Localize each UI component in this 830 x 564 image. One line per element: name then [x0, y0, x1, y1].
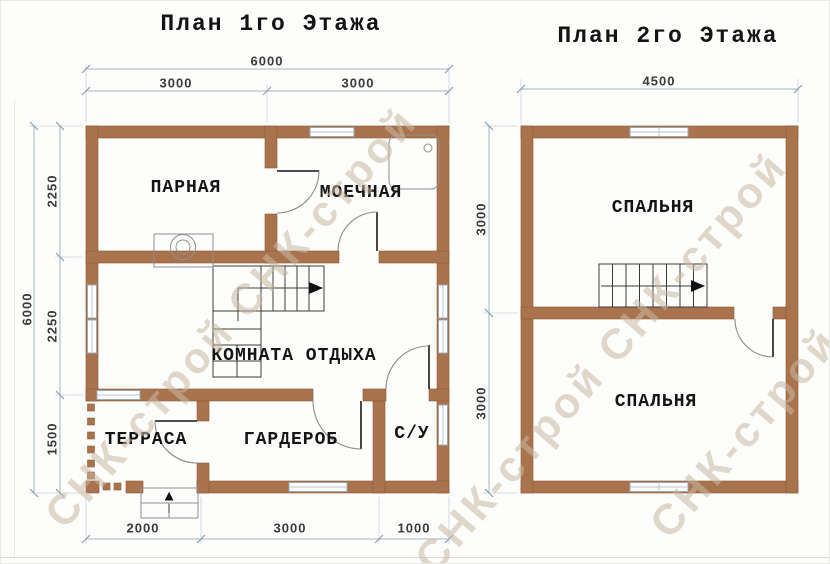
room-label-wash: МОЕЧНАЯ: [320, 183, 403, 203]
floorplan-sheet: План 1го Этажа План 2го Этажа ПАРНАЯ МОЕ…: [0, 0, 830, 564]
room-label-bedroom-top: СПАЛЬНЯ: [612, 198, 695, 218]
room-label-terrace: ТЕРРАСА: [105, 430, 188, 450]
stair-direction-arrow: [309, 282, 323, 294]
floor2-walls: [521, 126, 798, 493]
shower-tray: [389, 135, 439, 189]
dim-f1-bottom-left: 2000: [127, 521, 160, 536]
dim-f1-top-total: 6000: [251, 54, 284, 69]
dim-f2-left-bottom: 3000: [474, 387, 489, 420]
dim-f1-left-bottom: 1500: [45, 423, 60, 456]
room-label-steam: ПАРНАЯ: [151, 178, 222, 198]
entrance-arrow-icon: ▲: [162, 489, 177, 504]
floor1-title: План 1го Этажа: [160, 11, 381, 37]
floor2-door: [735, 319, 773, 357]
dim-f1-top-left: 3000: [160, 76, 193, 91]
floor2-title: План 2го Этажа: [557, 23, 778, 49]
dim-f1-top-right: 3000: [342, 76, 375, 91]
dim-f2-left-top: 3000: [474, 203, 489, 236]
dim-f1-left-total: 6000: [20, 293, 35, 326]
dim-f1-bottom-right: 1000: [398, 521, 431, 536]
floor2-staircase: [599, 264, 707, 307]
room-label-bedroom-bottom: СПАЛЬНЯ: [615, 392, 698, 412]
room-label-wardrobe: ГАРДЕРОБ: [244, 430, 338, 450]
room-label-wc: С/У: [394, 424, 429, 444]
floor1-doors: [155, 171, 429, 463]
dim-f1-bottom-mid: 3000: [274, 521, 307, 536]
dim-f2-top-total: 4500: [643, 74, 676, 89]
dim-f1-left-mid: 2250: [45, 310, 60, 343]
floorplan-drawing: [1, 1, 830, 564]
photo-edge-line: [14, 101, 15, 557]
dim-f1-left-top: 2250: [45, 175, 60, 208]
photo-edge-line: [1, 557, 830, 558]
stair-direction-arrow: [691, 280, 705, 292]
room-label-lounge: КОМНАТА ОТДЫХА: [211, 346, 376, 366]
